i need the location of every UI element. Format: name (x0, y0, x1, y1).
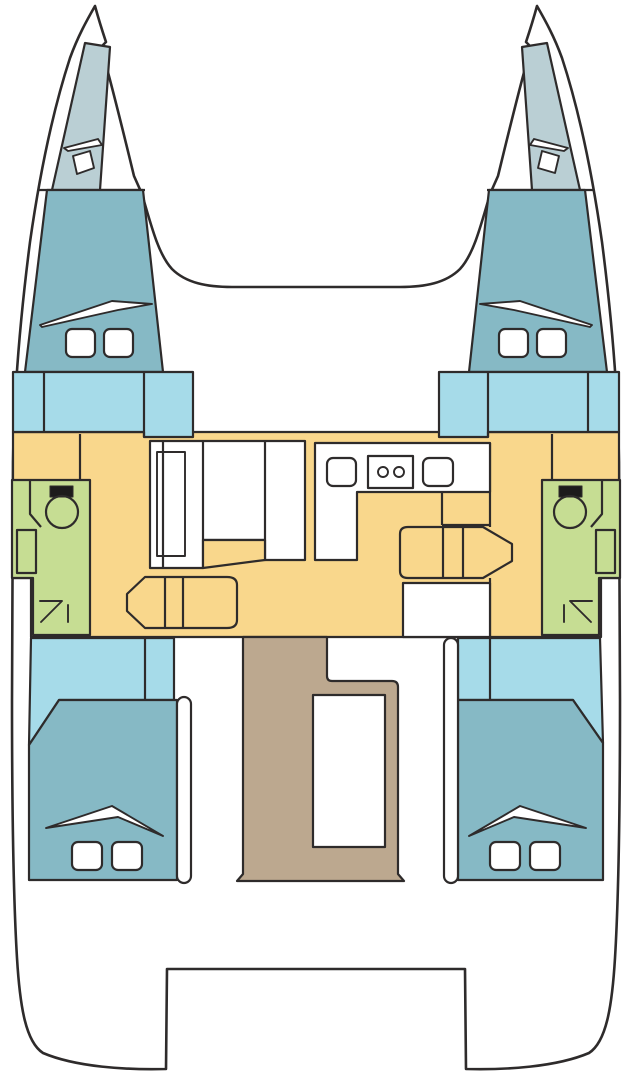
saloon-bench-starboard (400, 527, 512, 578)
starboard-aft-pillow-icon (490, 842, 520, 870)
starboard-forepeak-hatch-icon (538, 151, 559, 173)
starboard-forward-pillow-icon (499, 329, 528, 357)
port-aft-pillow-icon (72, 842, 102, 870)
starboard-companion-landing (403, 583, 490, 637)
port-lockers (13, 372, 193, 437)
starboard-sliding-door (444, 638, 458, 883)
port-sliding-door (177, 697, 191, 883)
deck-plan-svg (0, 0, 632, 1080)
companionway-opening (313, 695, 385, 847)
port-aft-pillow-icon (112, 842, 142, 870)
galley-sink-icon (423, 458, 453, 486)
starboard-forward-pillow-icon (537, 329, 566, 357)
stove-icon (368, 456, 413, 488)
starboard-aft-pillow-icon (530, 842, 560, 870)
port-forward-pillow-icon (104, 329, 133, 357)
starboard-lockers (439, 372, 619, 437)
galley-sink-icon (327, 458, 356, 486)
port-forward-pillow-icon (66, 329, 95, 357)
deck-plan (0, 0, 632, 1080)
